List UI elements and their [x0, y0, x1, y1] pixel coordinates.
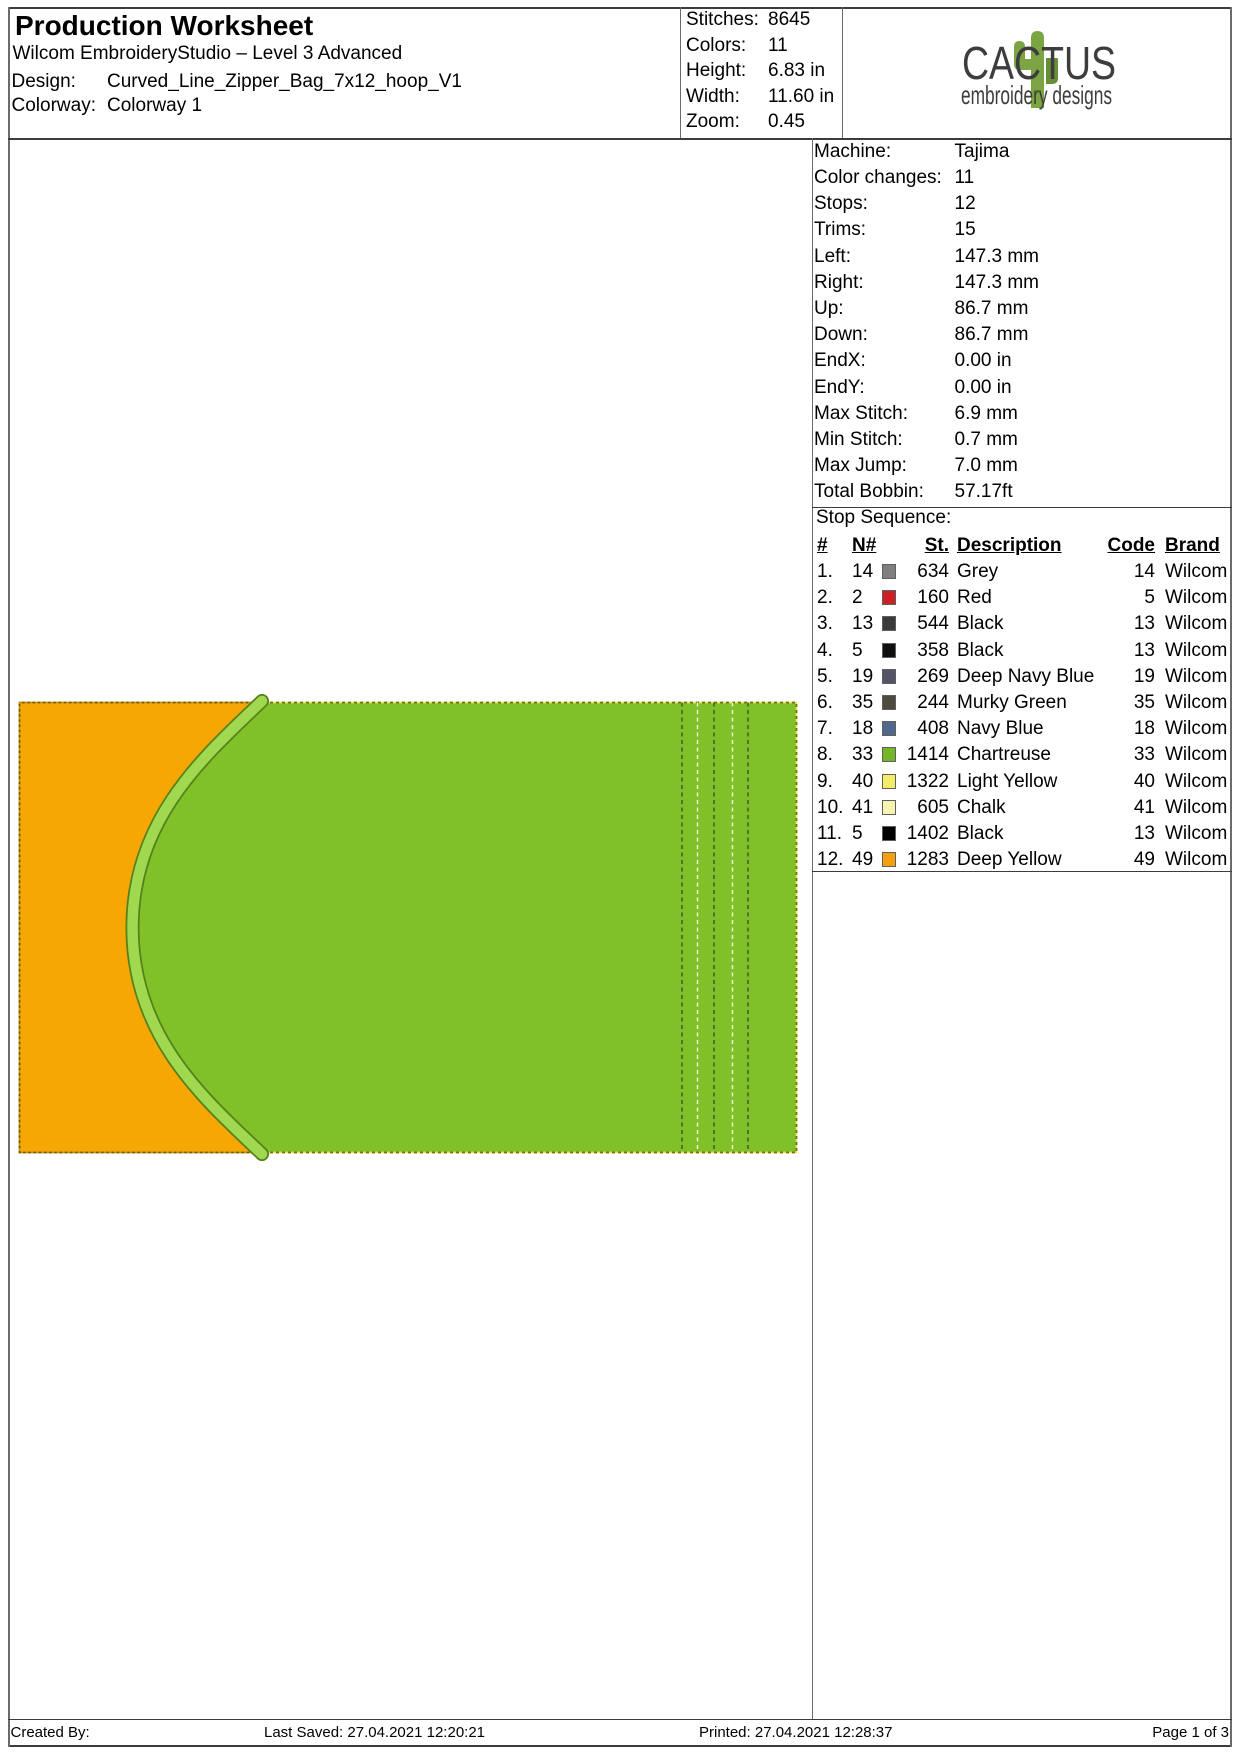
svg-text:embroidery designs: embroidery designs — [961, 80, 1112, 110]
